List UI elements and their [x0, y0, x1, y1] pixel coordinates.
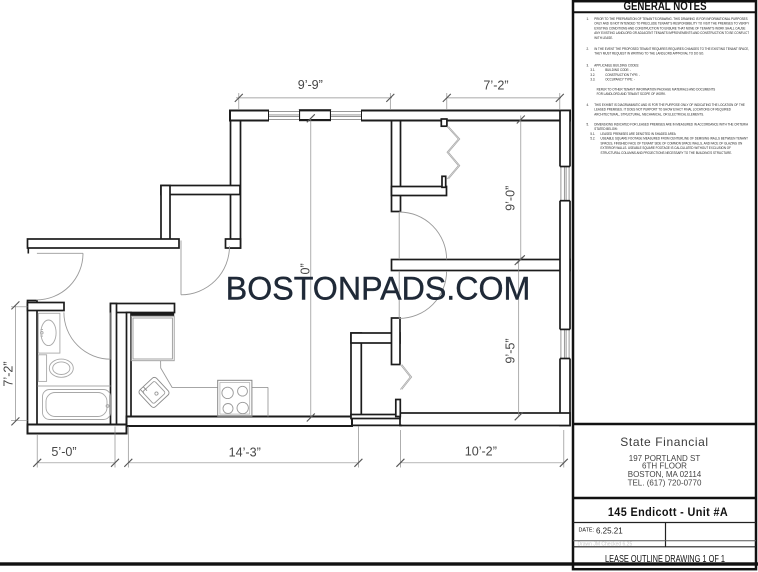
svg-text:6TH FLOOR: 6TH FLOOR: [642, 461, 687, 470]
svg-text:3.2.: 3.2.: [590, 73, 595, 77]
svg-text:ARCHITECTURAL, STRUCTURAL, MEC: ARCHITECTURAL, STRUCTURAL, MECHANICAL, O…: [594, 112, 704, 116]
svg-text:7’-2”: 7’-2”: [2, 361, 16, 386]
svg-text:DATE:: DATE:: [579, 528, 594, 534]
svg-text:State Financial: State Financial: [620, 435, 708, 449]
svg-text:6.25.21: 6.25.21: [596, 527, 623, 536]
svg-text:4.: 4.: [587, 103, 590, 107]
svg-text:THEY MUST REQUEST IN WRITING: THEY MUST REQUEST IN WRITING TO THE LAND…: [594, 51, 704, 55]
svg-text:OCCUPANCY TYPE: -: OCCUPANCY TYPE: -: [605, 77, 635, 81]
svg-text:1.: 1.: [587, 17, 590, 21]
svg-text:7’-2”: 7’-2”: [483, 79, 508, 93]
svg-text:GENERAL NOTES: GENERAL NOTES: [623, 0, 706, 13]
svg-text:LEASE OUTLINE DRAWING 1 OF 1: LEASE OUTLINE DRAWING 1 OF 1: [605, 553, 725, 564]
svg-text:STRUCTURAL COLUMNS AND PROJECT: STRUCTURAL COLUMNS AND PROJECTIONS NECES…: [601, 150, 733, 154]
svg-text:EXTERIOR WALLS. USEABLE SQUAR: EXTERIOR WALLS. USEABLE SQUARE FOOTAGE I…: [601, 146, 731, 150]
svg-text:ANY EXISTING LANDLORD OR ADJAC: ANY EXISTING LANDLORD OR ADJACENT TENANT…: [594, 31, 749, 35]
svg-text:WITH LEASE.: WITH LEASE.: [594, 36, 613, 40]
svg-text:5’-0”: 5’-0”: [51, 445, 76, 459]
svg-text:145 Endicott - Unit #A: 145 Endicott - Unit #A: [608, 506, 728, 518]
svg-text:5.2.: 5.2.: [590, 136, 595, 140]
svg-text:BOSTONPADS.COM: BOSTONPADS.COM: [226, 271, 531, 307]
svg-text:3.: 3.: [587, 63, 590, 67]
svg-text:5.: 5.: [587, 122, 590, 126]
svg-text:CONSTRUCTION TYPE: -: CONSTRUCTION TYPE: -: [605, 73, 640, 77]
svg-text:10’-2”: 10’-2”: [465, 445, 497, 459]
svg-text:14’-3”: 14’-3”: [229, 446, 261, 460]
svg-text:9’-5”: 9’-5”: [504, 338, 518, 363]
svg-text:TEL. (617) 720-0770: TEL. (617) 720-0770: [628, 479, 702, 488]
svg-text:2.: 2.: [587, 47, 590, 51]
svg-text:FOR LANDLORD AND TENANT SCOPE: FOR LANDLORD AND TENANT SCOPE OF WORK.: [597, 92, 666, 96]
svg-text:9’-9”: 9’-9”: [298, 78, 323, 92]
svg-text:3.3.: 3.3.: [590, 77, 595, 81]
svg-text:EXISTING CONDITIONS AND CONSTR: EXISTING CONDITIONS AND CONSTRUCTION TO …: [594, 26, 746, 30]
svg-text:9’-0”: 9’-0”: [504, 186, 518, 211]
